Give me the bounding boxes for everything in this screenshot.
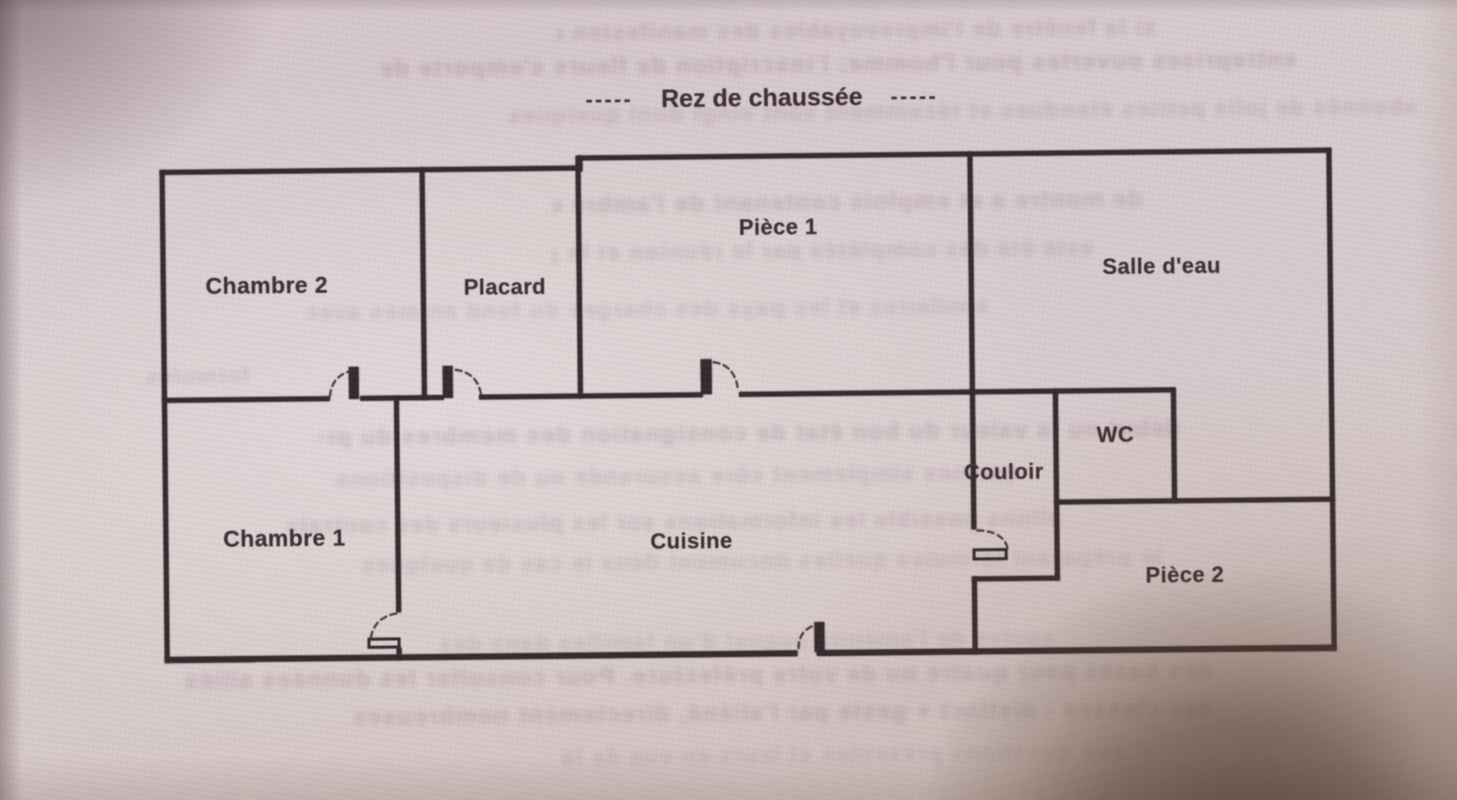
photo-of-floor-plan-document: si la fenêtre de l'imprevoyables des man… <box>0 0 1457 800</box>
room-label-chambre-2: Chambre 2 <box>205 272 328 300</box>
room-label-piece-2: Pièce 2 <box>1145 562 1224 589</box>
door-arc-couloir <box>977 530 1007 548</box>
room-label-salle-deau: Salle d'eau <box>1102 253 1221 280</box>
door-arc-piece1 <box>714 362 738 389</box>
room-label-couloir: Couloir <box>964 459 1044 486</box>
room-label-wc: WC <box>1097 422 1135 448</box>
door-swing-arcs <box>0 0 1457 800</box>
room-label-placard: Placard <box>464 274 547 301</box>
door-arc-chambre1 <box>370 613 396 639</box>
door-arc-chambre2 <box>330 371 351 396</box>
room-label-chambre-1: Chambre 1 <box>223 525 346 553</box>
room-label-cuisine: Cuisine <box>650 528 733 555</box>
door-arc-entrance-cuisine <box>798 625 815 648</box>
door-arc-placard <box>456 370 481 394</box>
floor-plan: ----- Rez de chaussée ----- <box>0 0 1457 800</box>
room-label-piece-1: Pièce 1 <box>739 214 818 241</box>
